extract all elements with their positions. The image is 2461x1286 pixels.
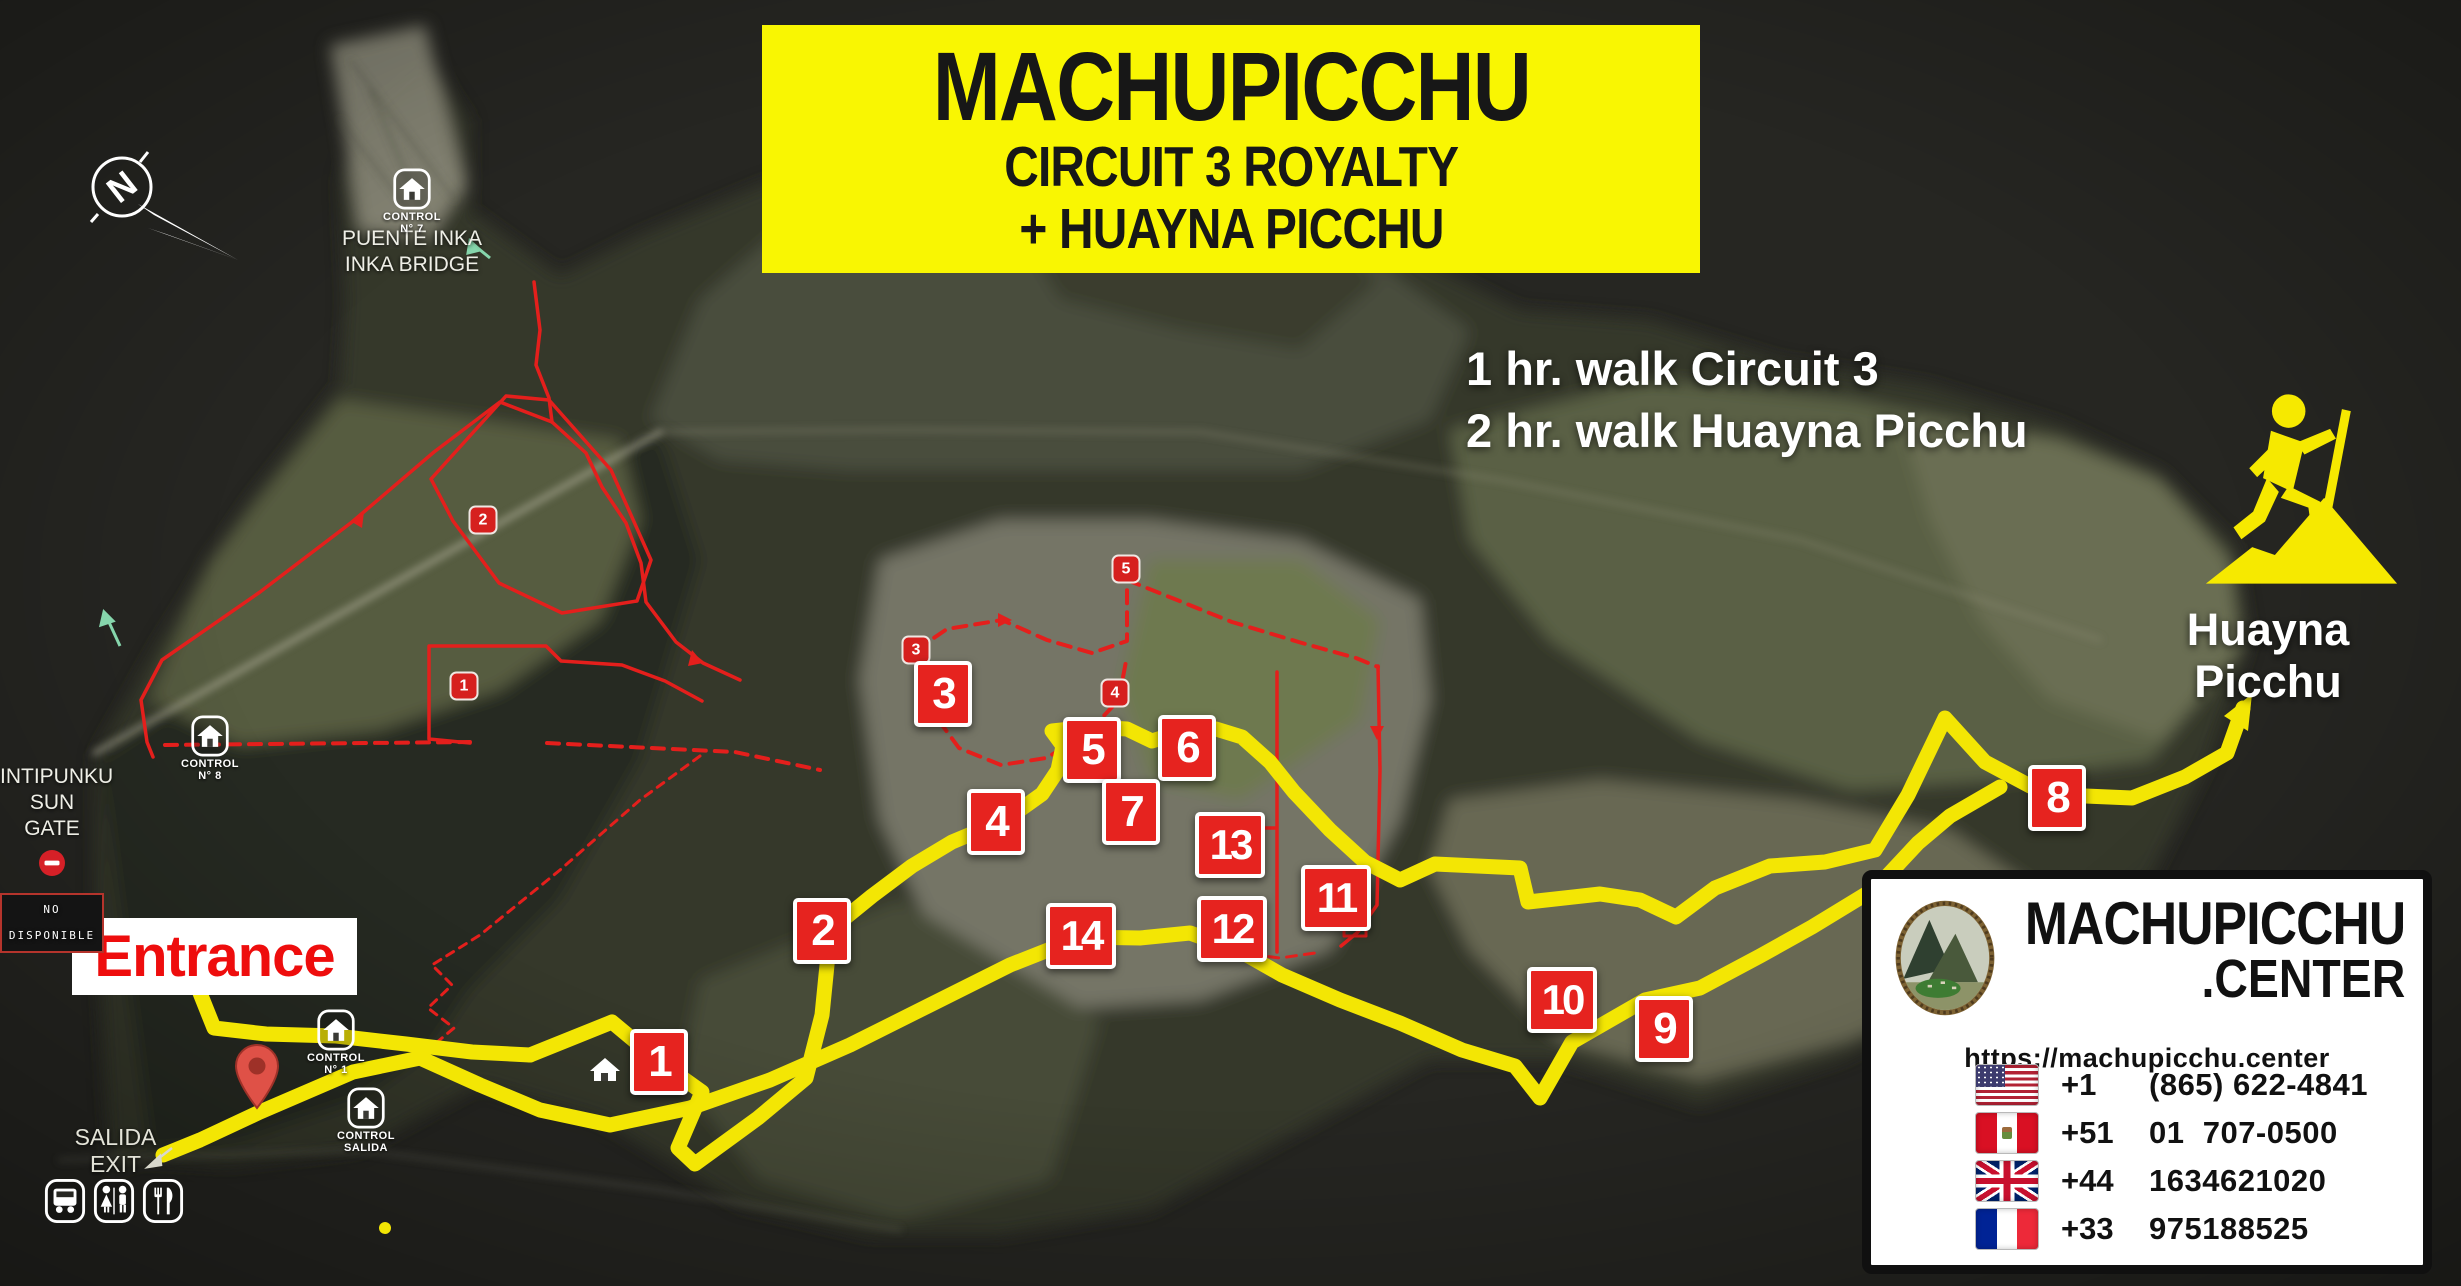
route-stop-marker-8: 8 — [2028, 765, 2086, 831]
stop-markers-layer: 1234567891011121314 — [0, 0, 2461, 1286]
route-stop-marker-3: 3 — [914, 661, 972, 727]
route-stop-marker-5: 5 — [1063, 717, 1121, 783]
route-stop-marker-9: 9 — [1635, 996, 1693, 1062]
route-stop-marker-2: 2 — [793, 898, 851, 964]
route-stop-marker-10: 10 — [1527, 967, 1597, 1033]
route-stop-marker-12: 12 — [1197, 896, 1267, 962]
route-stop-marker-4: 4 — [967, 789, 1025, 855]
route-stop-marker-7: 7 — [1102, 779, 1160, 845]
machu-picchu-circuit-map: N MACHUPICCHU CIRCUIT 3 ROYALTY + HUAYNA… — [0, 0, 2461, 1286]
route-stop-marker-1: 1 — [630, 1029, 688, 1095]
route-stop-marker-11: 11 — [1301, 865, 1371, 931]
route-stop-marker-6: 6 — [1158, 715, 1216, 781]
route-stop-marker-13: 13 — [1195, 812, 1265, 878]
route-stop-marker-14: 14 — [1046, 903, 1116, 969]
